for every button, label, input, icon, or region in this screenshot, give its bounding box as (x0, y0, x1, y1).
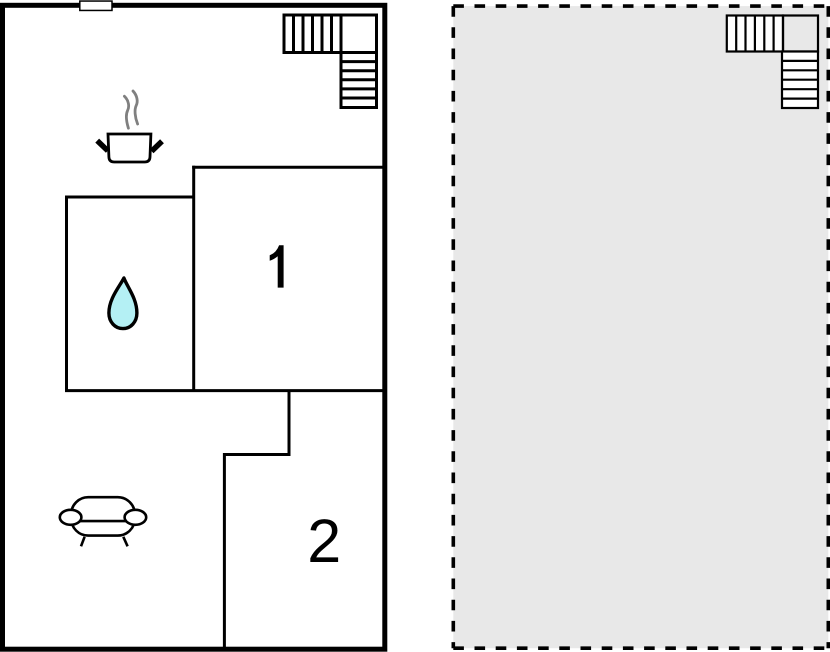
svg-text:2: 2 (307, 507, 341, 575)
